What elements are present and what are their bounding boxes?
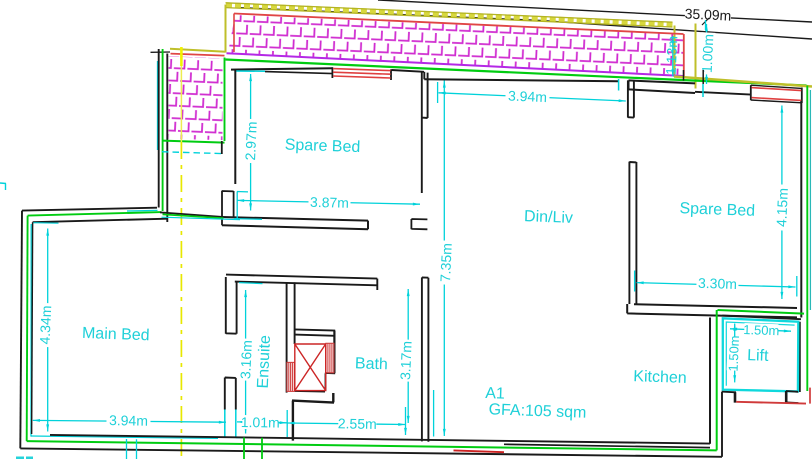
svg-text:7.35m: 7.35m bbox=[437, 243, 455, 283]
svg-text:4.34m: 4.34m bbox=[37, 305, 55, 345]
svg-text:1.01m: 1.01m bbox=[241, 414, 280, 431]
svg-text:1.50m: 1.50m bbox=[726, 335, 743, 372]
svg-text:3.16m: 3.16m bbox=[237, 340, 255, 380]
svg-text:3.94m: 3.94m bbox=[109, 412, 148, 429]
svg-text:1.50m: 1.50m bbox=[743, 322, 780, 338]
svg-text:3.17m: 3.17m bbox=[397, 341, 415, 381]
svg-text:3.94m: 3.94m bbox=[508, 87, 548, 105]
svg-text:4.15m: 4.15m bbox=[773, 188, 791, 228]
svg-text:1.13m: 1.13m bbox=[663, 36, 681, 76]
svg-text:1.00m: 1.00m bbox=[699, 34, 717, 74]
svg-text:35.09m: 35.09m bbox=[684, 5, 731, 23]
svg-text:3.87m: 3.87m bbox=[310, 194, 349, 211]
svg-text:Bath: Bath bbox=[355, 355, 388, 373]
svg-text:3.30m: 3.30m bbox=[698, 275, 737, 292]
svg-text:Din/Liv: Din/Liv bbox=[524, 208, 573, 227]
svg-text:GFA:105 sqm: GFA:105 sqm bbox=[488, 401, 586, 421]
svg-text:Ensuite: Ensuite bbox=[255, 335, 274, 389]
svg-text:2.97m: 2.97m bbox=[242, 121, 260, 161]
svg-text:Kitchen: Kitchen bbox=[633, 368, 687, 387]
svg-text:A1: A1 bbox=[485, 385, 505, 403]
svg-text:Main Bed: Main Bed bbox=[82, 325, 150, 344]
svg-text:Lift: Lift bbox=[747, 347, 769, 365]
svg-text:Spare Bed: Spare Bed bbox=[284, 136, 360, 156]
svg-text:Spare Bed: Spare Bed bbox=[679, 200, 755, 220]
svg-text:2.55m: 2.55m bbox=[338, 415, 377, 432]
